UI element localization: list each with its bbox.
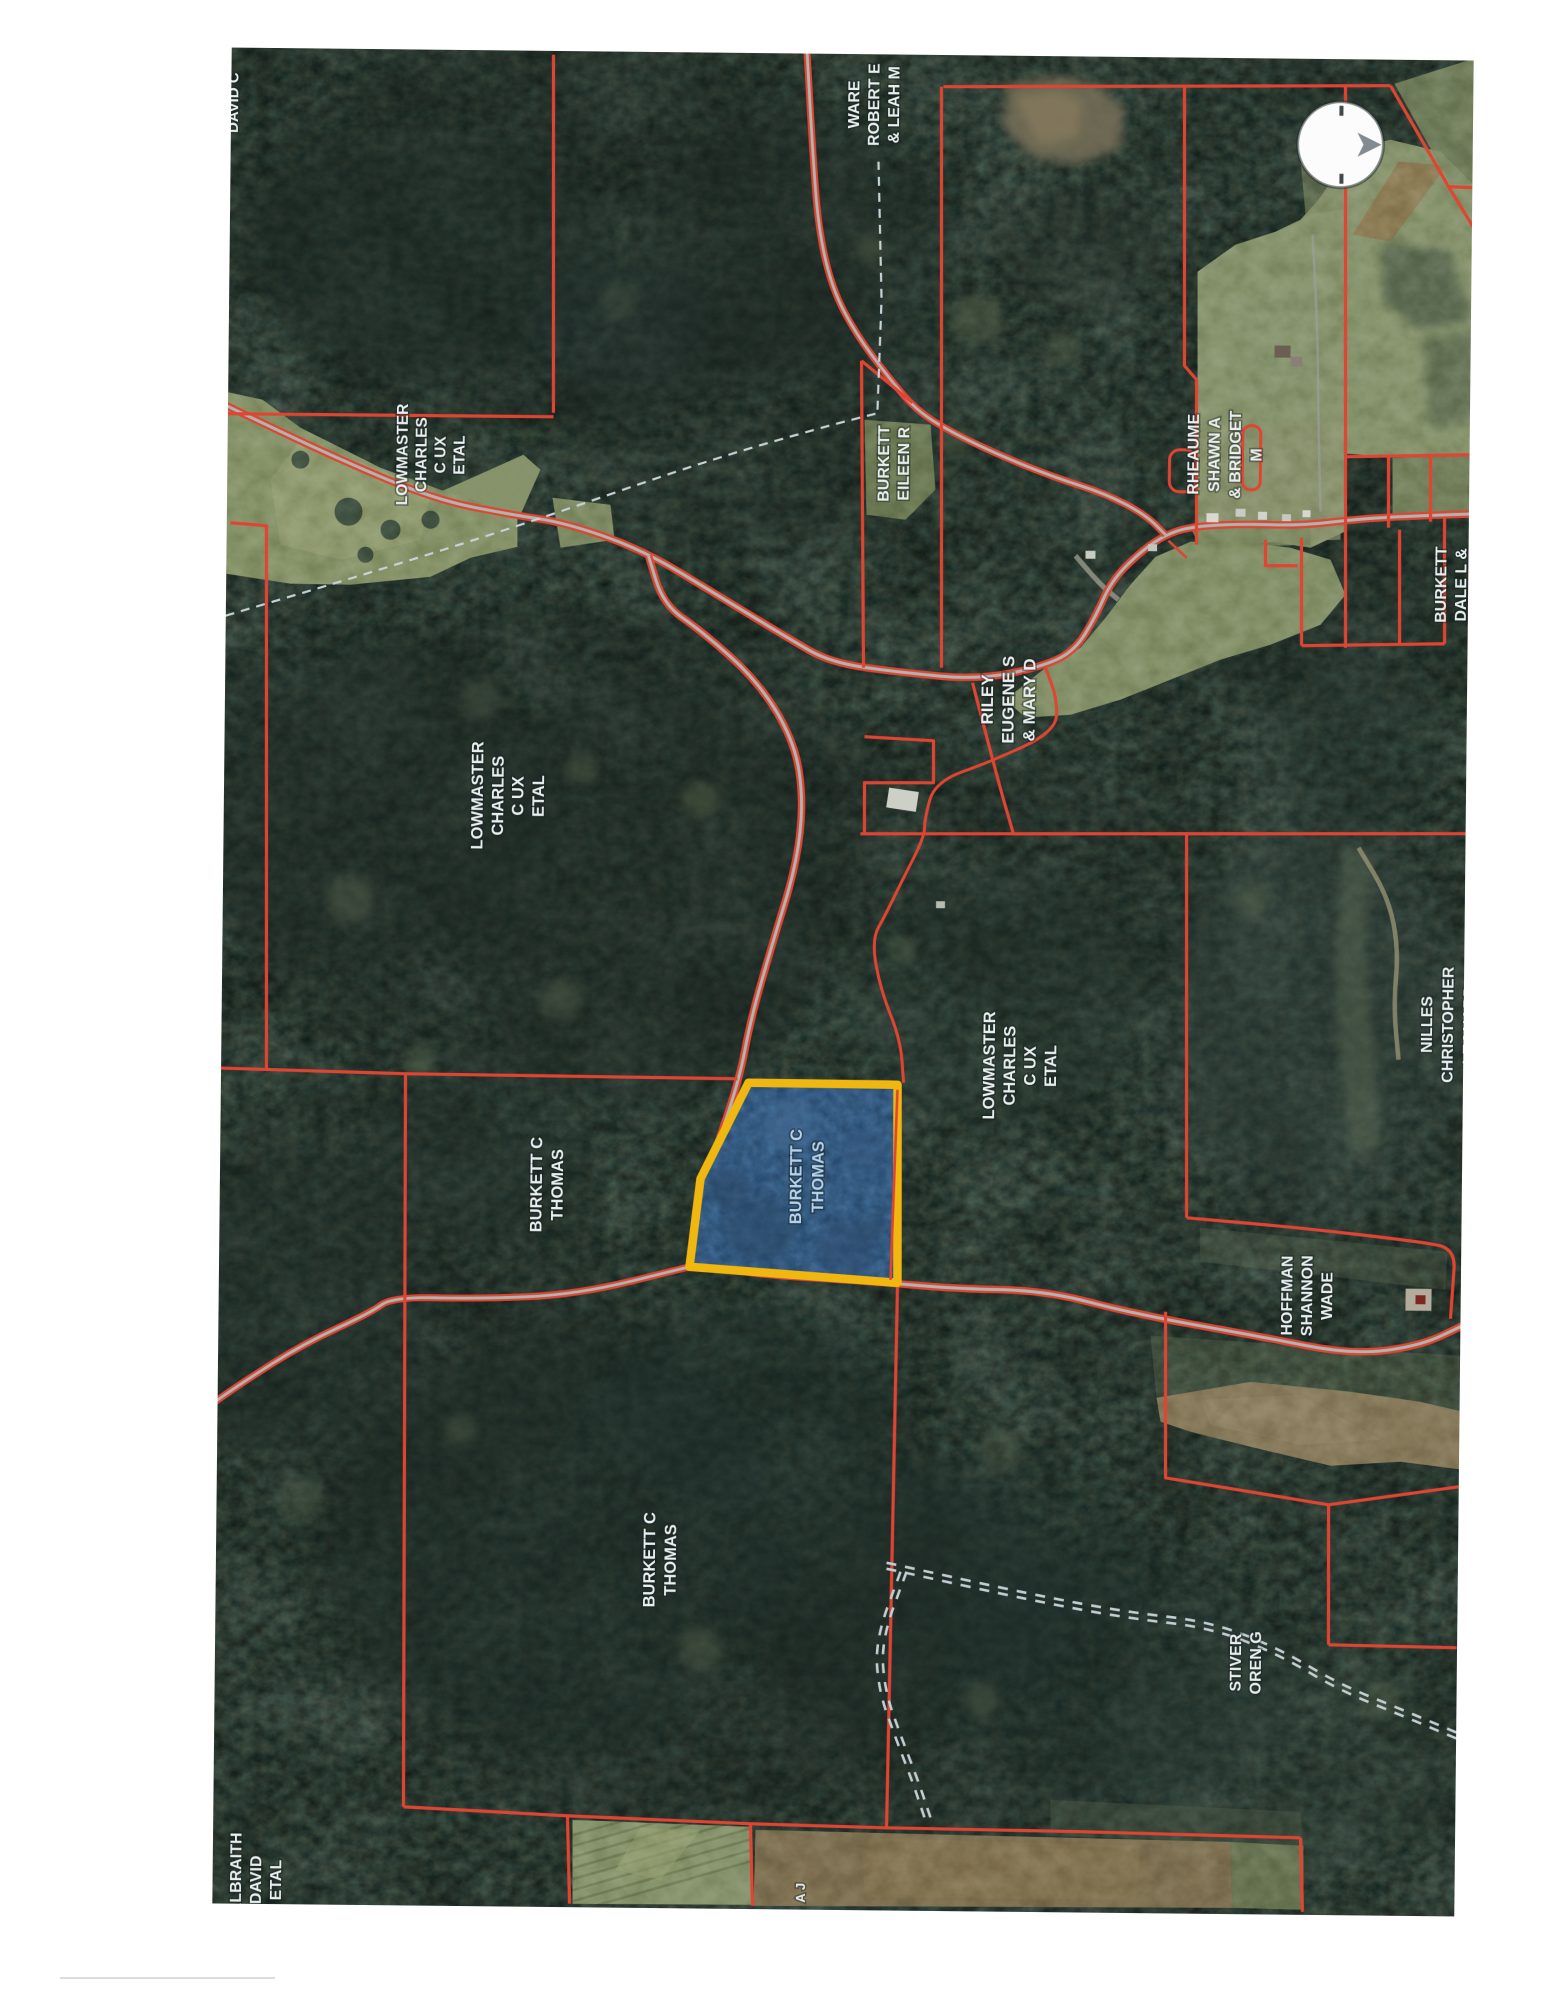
svg-text:M: M: [1248, 449, 1265, 463]
svg-text:THOMAS: THOMAS: [809, 1141, 828, 1213]
svg-text:DAVID C: DAVID C: [224, 72, 242, 133]
svg-text:C UX: C UX: [509, 776, 527, 816]
svg-text:ROBERT E: ROBERT E: [865, 63, 883, 146]
svg-text:SHANNON: SHANNON: [1298, 1255, 1316, 1336]
svg-text:C UX: C UX: [432, 436, 449, 474]
svg-text:RILEY: RILEY: [977, 674, 997, 725]
svg-text:DAVID: DAVID: [247, 1856, 265, 1905]
svg-text:RHEAUME: RHEAUME: [1185, 414, 1203, 495]
svg-text:A J: A J: [792, 1883, 807, 1903]
svg-text:ETAL: ETAL: [529, 775, 547, 817]
svg-text:DALE L &: DALE L &: [1452, 548, 1470, 622]
svg-text:THOMAS: THOMAS: [548, 1149, 567, 1221]
svg-text:CHARLES: CHARLES: [1000, 1026, 1019, 1106]
svg-text:ETAL: ETAL: [1042, 1045, 1060, 1087]
svg-text:HOFFMAN: HOFFMAN: [1278, 1256, 1296, 1336]
svg-text:CHRISTOPHER: CHRISTOPHER: [1439, 966, 1457, 1083]
svg-text:OREN G: OREN G: [1247, 1631, 1265, 1694]
svg-text:CHARLES: CHARLES: [413, 417, 431, 492]
svg-text:WARE: WARE: [845, 80, 863, 129]
svg-text:BURKETT C: BURKETT C: [786, 1129, 805, 1225]
svg-text:NILLES: NILLES: [1418, 996, 1436, 1053]
svg-text:EILEEN R: EILEEN R: [895, 427, 913, 501]
svg-text:& LEAH M: & LEAH M: [885, 66, 903, 144]
svg-text:LEONARD: LEONARD: [1460, 986, 1473, 1065]
svg-text:ETAL: ETAL: [451, 436, 468, 476]
svg-text:LOWMASTER: LOWMASTER: [468, 741, 487, 849]
svg-text:THOMAS: THOMAS: [661, 1524, 680, 1596]
svg-text:C UX: C UX: [1021, 1046, 1039, 1086]
svg-text:SHAWN A: SHAWN A: [1206, 417, 1224, 493]
svg-text:& BRIDGET: & BRIDGET: [1227, 411, 1245, 499]
svg-text:WADE: WADE: [1318, 1272, 1336, 1321]
svg-text:& MARY D: & MARY D: [1019, 659, 1039, 742]
svg-text:BURKETT C: BURKETT C: [527, 1137, 546, 1233]
svg-text:ETAL: ETAL: [267, 1860, 284, 1901]
svg-text:BURKETT: BURKETT: [1432, 546, 1450, 623]
svg-text:BURKETT C: BURKETT C: [640, 1512, 659, 1608]
svg-text:LOWMASTER: LOWMASTER: [980, 1011, 999, 1119]
svg-text:CHARLES: CHARLES: [488, 756, 507, 836]
svg-text:LOWMASTER: LOWMASTER: [393, 404, 411, 506]
svg-text:GALBRAITH: GALBRAITH: [227, 1833, 245, 1917]
svg-text:STIVER: STIVER: [1227, 1633, 1245, 1691]
svg-text:EUGENE S: EUGENE S: [998, 656, 1018, 744]
svg-text:BURKETT: BURKETT: [875, 425, 893, 502]
